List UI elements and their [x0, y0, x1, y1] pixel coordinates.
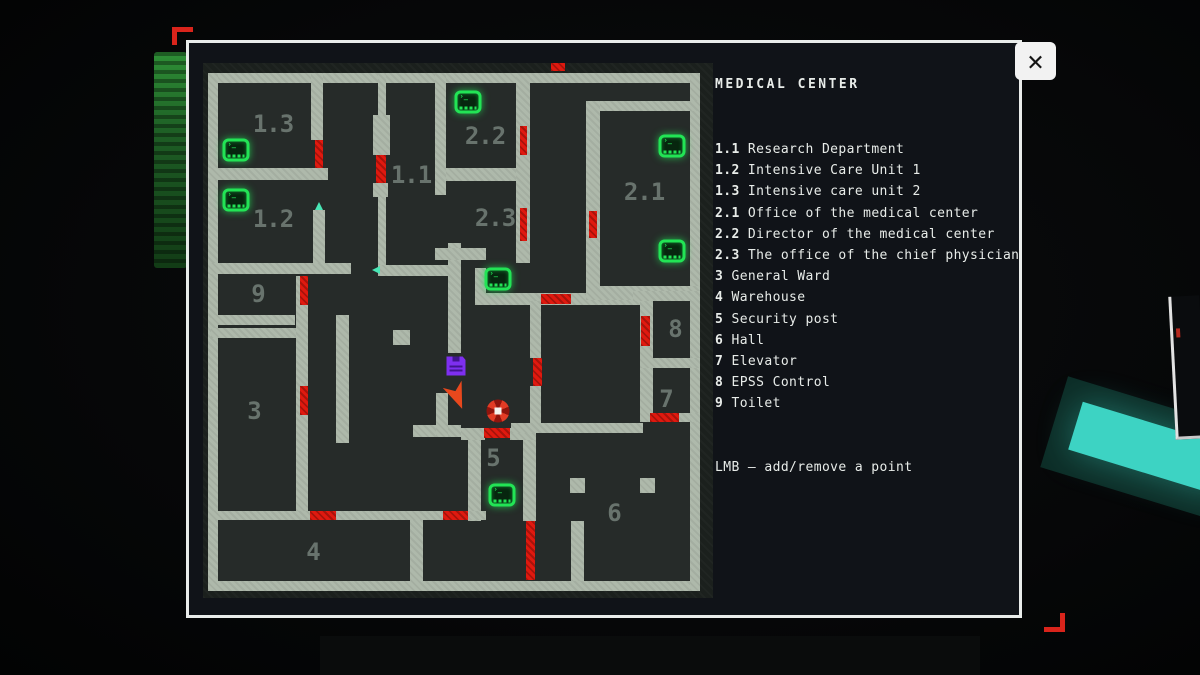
legend-item-name: Director of the medical center: [740, 227, 995, 242]
room-label-4: 4: [306, 538, 319, 566]
legend-item: 8 EPSS Control: [715, 372, 1019, 393]
door-marker: [443, 511, 468, 520]
room-label-1.2: 1.2: [253, 205, 293, 233]
legend-item-number: 1.1: [715, 142, 740, 157]
wall: [436, 393, 448, 437]
legend-item: 7 Elevator: [715, 351, 1019, 372]
door-marker: [484, 428, 510, 438]
legend-item-number: 7: [715, 354, 723, 369]
wall: [311, 73, 323, 140]
legend-item-number: 9: [715, 396, 723, 411]
legend-item: 1.2 Intensive Care Unit 1: [715, 160, 1019, 181]
legend-item-number: 1.2: [715, 163, 740, 178]
legend: 1.1 Research Department1.2 Intensive Car…: [715, 139, 1019, 415]
legend-item-number: 2.1: [715, 206, 740, 221]
legend-item-number: 2.3: [715, 248, 740, 263]
legend-item: 1.1 Research Department: [715, 139, 1019, 160]
terminal-icon: [223, 189, 250, 212]
wall: [461, 428, 485, 440]
wall: [640, 368, 653, 415]
wall: [208, 168, 328, 180]
wall: [523, 440, 536, 521]
legend-item: 2.2 Director of the medical center: [715, 224, 1019, 245]
door-marker: [589, 211, 597, 238]
close-icon: ✕: [1027, 48, 1043, 75]
wall: [690, 73, 700, 591]
terminal-icon: [455, 91, 482, 114]
legend-item-name: Elevator: [723, 354, 797, 369]
wall: [378, 73, 386, 117]
legend-item-name: EPSS Control: [723, 375, 830, 390]
corner-bracket-bottom-right-icon: [1044, 613, 1065, 632]
wall: [211, 315, 295, 325]
room-label-1.1: 1.1: [391, 161, 431, 189]
wall: [446, 168, 516, 181]
terminal-icon: [659, 240, 686, 263]
legend-item: 2.1 Office of the medical center: [715, 203, 1019, 224]
map-canvas[interactable]: 1.31.21.12.22.32.19387564: [203, 63, 713, 598]
door-marker: [300, 386, 308, 415]
terminal-icon: [223, 139, 250, 162]
door-marker: [300, 276, 308, 305]
wall: [633, 291, 700, 301]
door-marker: [533, 358, 542, 386]
legend-item-name: Warehouse: [723, 290, 805, 305]
wall: [208, 73, 700, 83]
legend-item: 3 General Ward: [715, 266, 1019, 287]
legend-item-number: 5: [715, 312, 723, 327]
wall: [570, 478, 585, 493]
wall: [586, 101, 600, 286]
wall: [373, 183, 388, 197]
door-marker: [551, 63, 565, 71]
wall: [598, 101, 700, 111]
side-screen-light: [1176, 328, 1180, 337]
close-button[interactable]: ✕: [1015, 42, 1056, 80]
legend-item: 2.3 The office of the chief physician: [715, 245, 1019, 266]
terminal-icon: [659, 135, 686, 158]
wall: [211, 328, 298, 338]
legend-item-number: 4: [715, 290, 723, 305]
legend-item: 1.3 Intensive care unit 2: [715, 181, 1019, 202]
map-title: MEDICAL CENTER: [715, 77, 860, 92]
save-point-icon: [447, 357, 466, 376]
wall: [640, 358, 700, 368]
room-label-1.3: 1.3: [253, 110, 293, 138]
door-marker: [315, 140, 323, 168]
wall: [468, 440, 481, 521]
room-label-5: 5: [486, 444, 499, 472]
door-marker: [526, 521, 535, 580]
legend-item-name: Research Department: [740, 142, 905, 157]
game-screen: ✕ 1.31.21.12.22.32.19387564 MEDICAL CENT…: [0, 0, 1200, 675]
room-label-6: 6: [607, 499, 620, 527]
wall: [208, 263, 351, 274]
legend-item-name: Security post: [723, 312, 838, 327]
legend-item: 6 Hall: [715, 330, 1019, 351]
wall: [313, 210, 325, 265]
wall: [378, 265, 448, 276]
legend-item-name: General Ward: [723, 269, 830, 284]
room-label-7: 7: [659, 385, 672, 413]
controls-hint: LMB – add/remove a point: [715, 460, 912, 475]
legend-item-number: 3: [715, 269, 723, 284]
legend-item-number: 8: [715, 375, 723, 390]
legend-item-number: 2.2: [715, 227, 740, 242]
door-marker: [520, 126, 527, 155]
wall: [393, 330, 410, 345]
legend-item-name: Office of the medical center: [740, 206, 979, 221]
wall: [336, 315, 349, 443]
door-marker: [310, 511, 336, 520]
floor-shadow: [320, 636, 980, 675]
terminal-icon: [489, 484, 516, 507]
wall: [373, 115, 390, 155]
legend-item-name: Intensive Care Unit 1: [740, 163, 921, 178]
door-marker: [376, 155, 386, 183]
room-label-8: 8: [668, 315, 681, 343]
room-label-3: 3: [247, 397, 260, 425]
wall: [435, 248, 486, 260]
room-label-2.2: 2.2: [465, 122, 505, 150]
door-marker: [520, 208, 527, 241]
legend-item-name: The office of the chief physician: [740, 248, 1020, 263]
dumpster-object: [154, 52, 187, 268]
door-marker: [641, 316, 650, 346]
wall: [410, 520, 423, 581]
legend-item-name: Intensive care unit 2: [740, 184, 921, 199]
legend-item-number: 6: [715, 333, 723, 348]
legend-item-number: 1.3: [715, 184, 740, 199]
door-marker: [650, 413, 679, 422]
room-label-9: 9: [251, 280, 264, 308]
wall: [435, 73, 446, 195]
legend-item-name: Toilet: [723, 396, 781, 411]
wall: [640, 478, 655, 493]
wall: [378, 197, 386, 265]
wall: [511, 423, 643, 433]
room-label-2.3: 2.3: [475, 204, 515, 232]
terminal-icon: [485, 268, 512, 291]
room-label-2.1: 2.1: [624, 178, 664, 206]
legend-item: 5 Security post: [715, 309, 1019, 330]
wall: [208, 581, 700, 591]
door-marker: [541, 294, 571, 304]
legend-item-name: Hall: [723, 333, 764, 348]
waypoint-marker[interactable]: [487, 400, 510, 423]
legend-item: 9 Toilet: [715, 393, 1019, 414]
legend-item: 4 Warehouse: [715, 287, 1019, 308]
map-panel: ✕ 1.31.21.12.22.32.19387564 MEDICAL CENT…: [186, 40, 1022, 618]
wall: [530, 301, 541, 358]
wall: [571, 521, 584, 581]
